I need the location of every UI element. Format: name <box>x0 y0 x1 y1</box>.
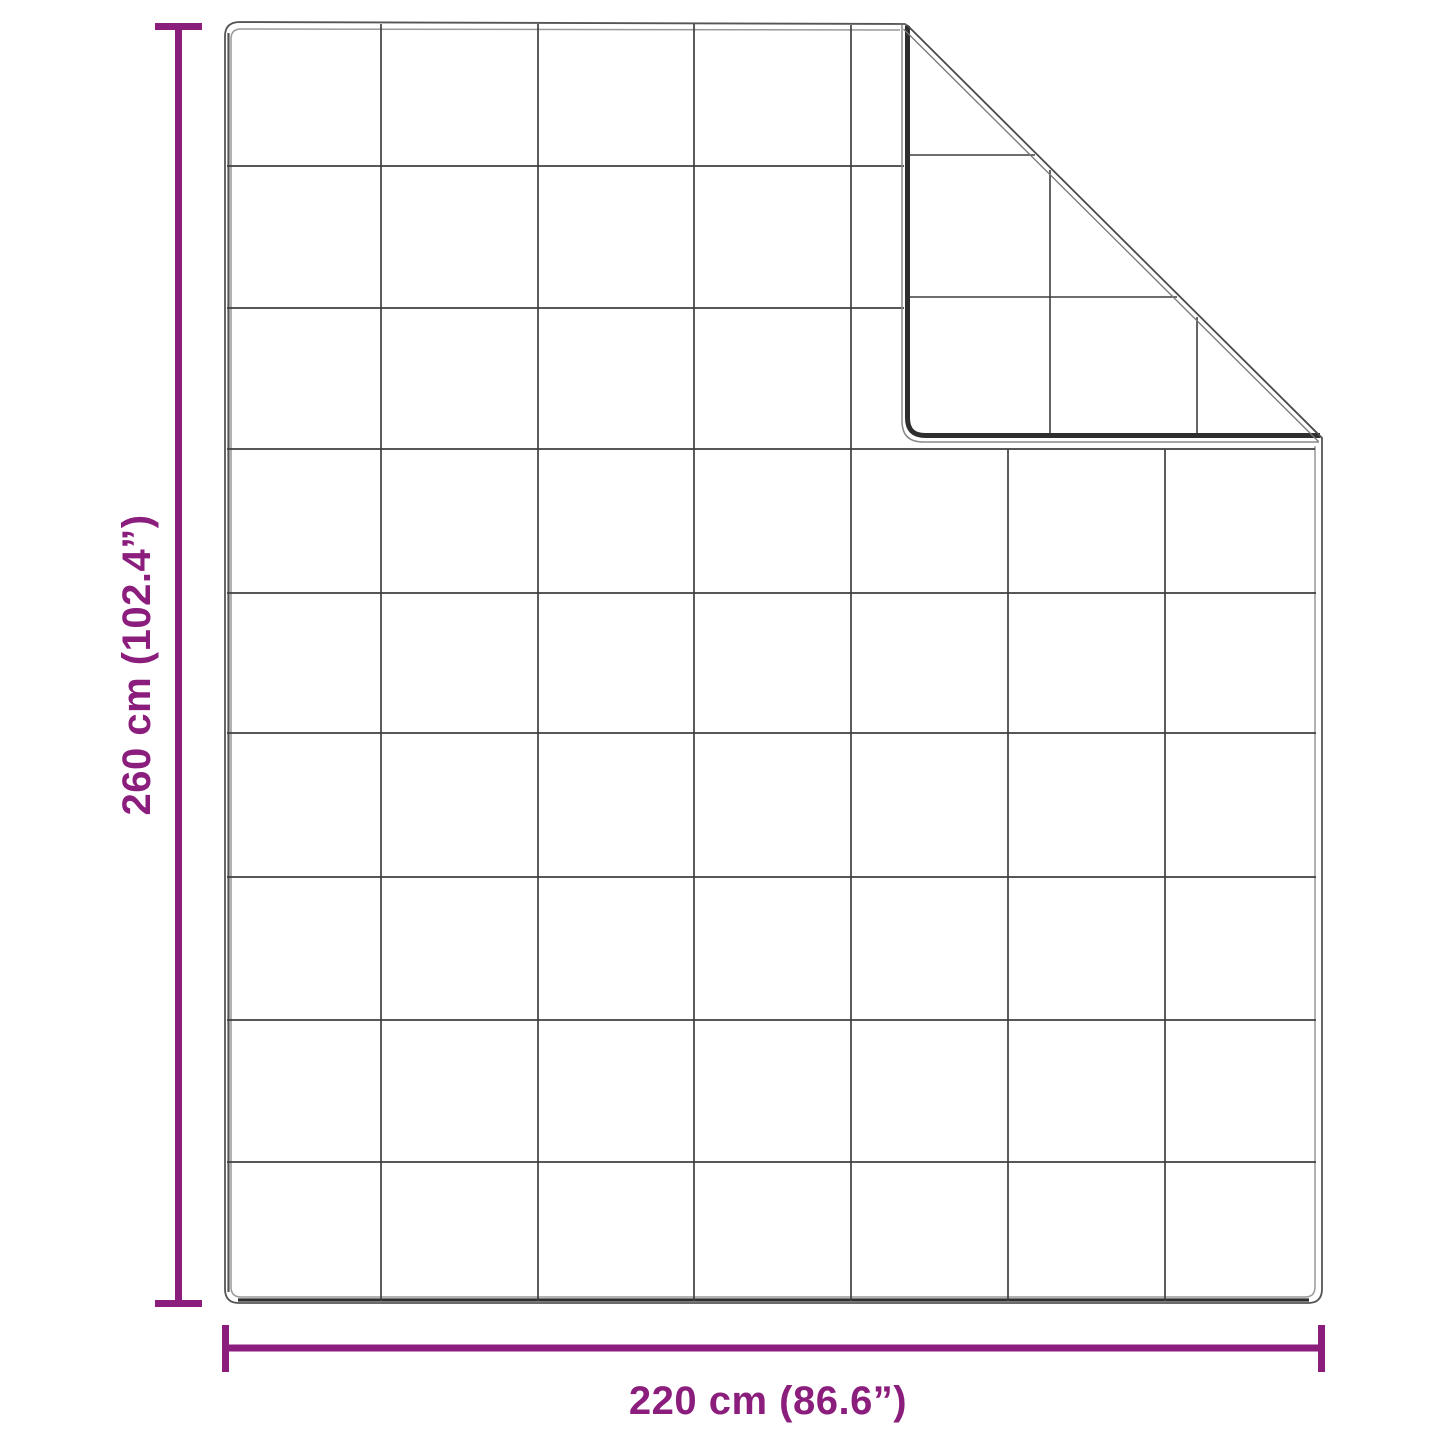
diagram-canvas: 260 cm (102.4”) 220 cm (86.6”) <box>0 0 1445 1445</box>
blanket-outline <box>225 22 1322 1303</box>
width-dimension: 220 cm (86.6”) <box>225 1325 1322 1423</box>
height-dimension: 260 cm (102.4”) <box>115 26 202 1304</box>
folded-corner <box>902 25 1322 442</box>
blanket-dimension-diagram: 260 cm (102.4”) 220 cm (86.6”) <box>0 0 1445 1445</box>
height-label: 260 cm (102.4”) <box>115 514 159 815</box>
width-label: 220 cm (86.6”) <box>629 1379 907 1423</box>
